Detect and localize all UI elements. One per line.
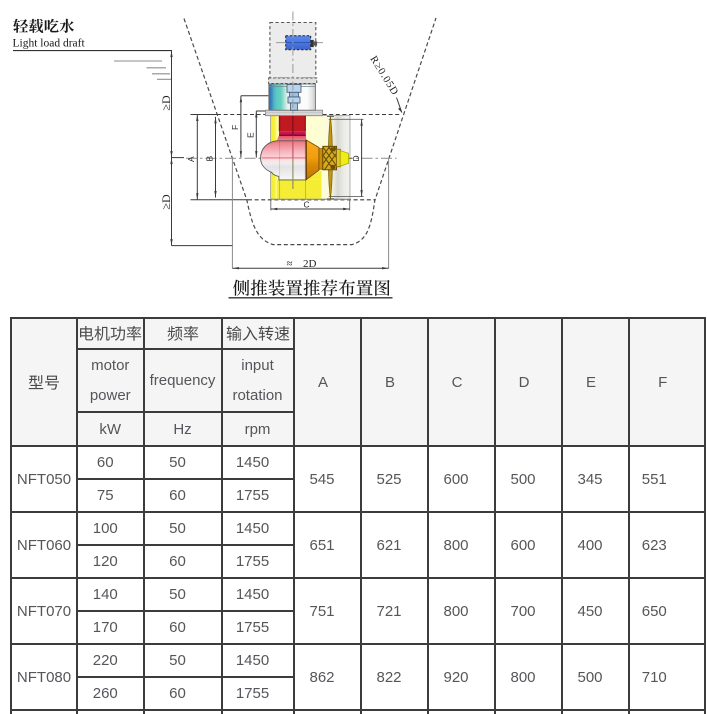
svg-text:R≥0.05D: R≥0.05D: [367, 54, 400, 97]
svg-text:D: D: [351, 155, 361, 161]
svg-text:≥D: ≥D: [159, 95, 173, 111]
svg-text:E: E: [245, 132, 255, 138]
svg-text:B: B: [205, 156, 215, 162]
svg-text:Light load draft: Light load draft: [13, 37, 86, 49]
svg-text:F: F: [230, 125, 240, 130]
svg-text:A: A: [186, 156, 196, 162]
svg-text:2D: 2D: [303, 258, 317, 270]
svg-text:≥D: ≥D: [159, 194, 173, 210]
svg-text:≈: ≈: [287, 258, 293, 270]
svg-text:C: C: [304, 200, 310, 210]
